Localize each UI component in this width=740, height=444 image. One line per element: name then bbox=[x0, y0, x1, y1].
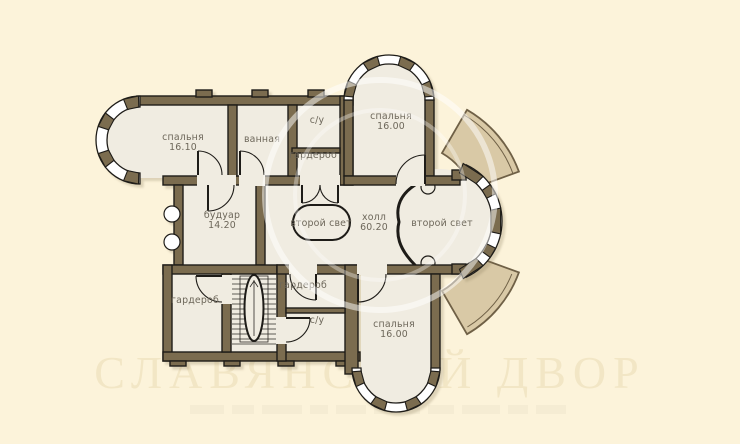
boudoir-niche-2 bbox=[164, 234, 180, 250]
room-area-bedroom-top: 16.00 bbox=[377, 121, 405, 132]
room-label-wc-bottom: с/у bbox=[310, 315, 325, 326]
floor-plan-page: план второго этажа СЛАВЯНСКИЙ ДВОР bbox=[0, 0, 740, 444]
room-label-wardrobe-top: гардероб bbox=[289, 150, 337, 161]
room-area-boudoir: 14.20 bbox=[208, 220, 236, 231]
room-area-bedroom-left: 16.10 bbox=[169, 142, 197, 153]
room-label-wc-top: с/у bbox=[310, 115, 325, 126]
room-label-void-right: второй свет bbox=[411, 218, 473, 229]
boudoir-niche-1 bbox=[164, 206, 180, 222]
floor-plan-drawing: СЛАВЯНСКИЙ ДВОР bbox=[0, 0, 740, 444]
room-label-wardrobe-left: гардероб bbox=[171, 295, 219, 306]
room-area-bedroom-bottom: 16.00 bbox=[380, 329, 408, 340]
room-area-hall: 60.20 bbox=[360, 222, 388, 233]
